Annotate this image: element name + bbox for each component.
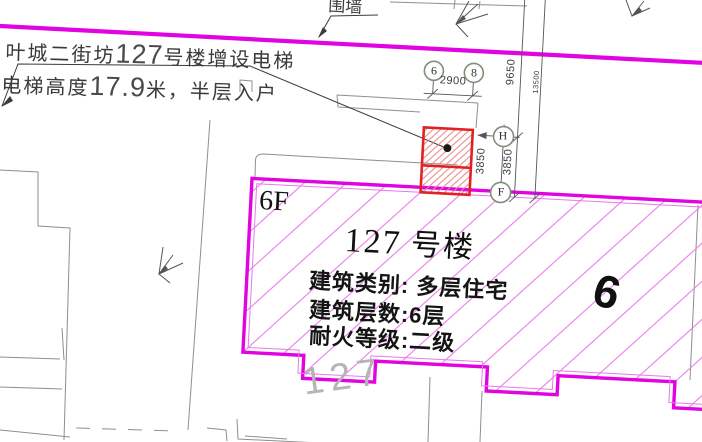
grid-bubble-6-label: 6 <box>431 64 437 79</box>
grade-arrow-top-center <box>455 1 488 37</box>
fence-label: 围墙 <box>328 0 363 18</box>
fence-leader-arrowhead <box>318 27 327 38</box>
dim-segment-right: 3850 <box>501 148 514 175</box>
dim-long-left: 9650 <box>504 58 517 85</box>
annotation-line1-suffix: 号楼增设电梯 <box>163 47 296 73</box>
annotation-line2-prefix: 电梯高度 <box>1 75 90 100</box>
building-title: 127 号楼 <box>344 216 477 267</box>
dim-long-right: 13500 <box>531 70 541 94</box>
grade-arrow-top-right <box>626 0 650 17</box>
elevator-shaft <box>421 127 473 194</box>
grid-bubble-8-label: 8 <box>471 66 477 81</box>
annotation-line2-suffix: 米，半层入户 <box>146 80 279 106</box>
annotation-line1-prefix: 叶城二街坊 <box>5 42 116 67</box>
dim-segment-left: 3850 <box>474 147 487 174</box>
grade-arrow-left <box>158 247 183 283</box>
site-plan-canvas: 叶城二街坊127号楼增设电梯 电梯高度17.9米，半层入户 围墙 6 8 H F… <box>0 0 702 442</box>
grid-bubble-h-label: H <box>499 129 508 144</box>
dim-elevator-width: 2900 <box>439 74 466 87</box>
annotation-line2-number: 17.9 <box>89 71 146 103</box>
building-title-number: 127 <box>344 222 403 262</box>
grid-bubble-f-label: F <box>498 185 505 200</box>
building-floors-badge: 6F <box>258 185 289 219</box>
annotation-line1-number: 127 <box>115 38 164 69</box>
building-title-suffix: 号楼 <box>401 228 476 265</box>
